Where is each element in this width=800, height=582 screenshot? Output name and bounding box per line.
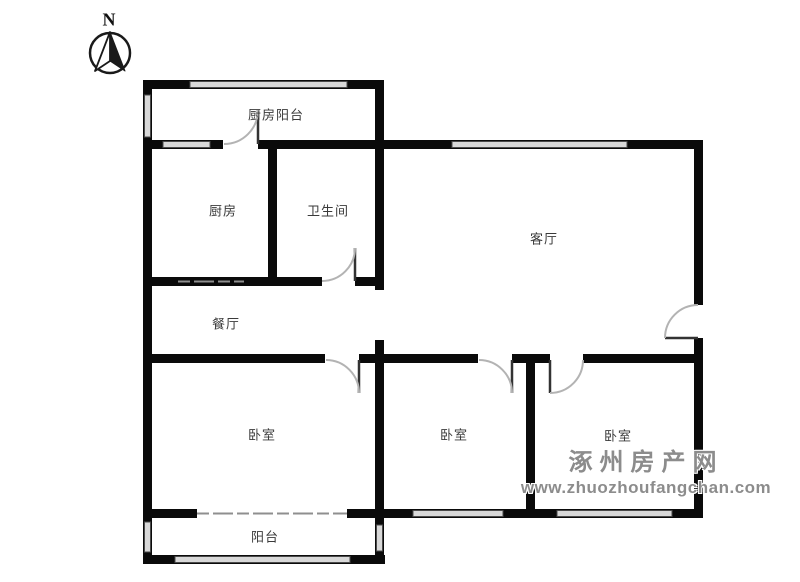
- wall-kitchen-bathroom-divider: [268, 140, 277, 286]
- wall-bedrooms-top-a: [143, 354, 325, 363]
- window-balcony-left: [145, 522, 151, 552]
- window-bedroom3-bottom: [557, 511, 672, 517]
- window-balcony-bottom: [175, 557, 350, 563]
- door-arc-entry: [665, 305, 698, 338]
- window-balcony-right: [377, 525, 383, 551]
- room-label-kitchen-balcony: 厨房阳台: [248, 105, 304, 124]
- door-arc-bathroom: [322, 248, 355, 281]
- room-label-dining-room: 餐厅: [212, 314, 240, 333]
- thin-partitions: [178, 282, 347, 514]
- room-label-balcony: 阳台: [251, 527, 279, 546]
- wall-bathroom-right: [375, 80, 384, 290]
- room-label-bedroom-2: 卧室: [440, 425, 468, 444]
- doors: [224, 110, 698, 393]
- room-label-bedroom-1: 卧室: [248, 425, 276, 444]
- window-kitchen-to-balcony: [163, 142, 210, 148]
- floorplan-canvas: N 厨房阳台 厨房 卫生间 客厅 餐厅 卧室 卧室 卧室 阳台 涿州房产网 ww…: [0, 0, 800, 582]
- door-arc-bedroom3: [550, 360, 583, 393]
- watermark-site-url: www.zhuozhoufangchan.com: [521, 478, 771, 498]
- door-openings: [223, 140, 704, 339]
- door-arc-bedroom2: [479, 360, 512, 393]
- window-living-room-top: [452, 142, 627, 148]
- compass: [90, 32, 130, 73]
- window-kitchen-balcony-left: [145, 95, 151, 137]
- room-label-living-room: 客厅: [530, 229, 558, 248]
- window-kitchen-balcony-top: [190, 82, 347, 88]
- watermark-site-name: 涿州房产网: [521, 442, 771, 477]
- door-arc-bedroom1: [326, 360, 359, 393]
- window-bedroom2-bottom: [413, 511, 503, 517]
- room-label-bathroom: 卫生间: [307, 201, 349, 220]
- wall-bedrooms-bottom-a: [143, 509, 197, 518]
- watermark: 涿州房产网 www.zhuozhoufangchan.com: [521, 442, 771, 498]
- room-label-kitchen: 厨房: [209, 201, 237, 220]
- wall-left-exterior: [143, 80, 152, 564]
- compass-north-label: N: [103, 10, 116, 31]
- wall-bedrooms-top-d: [583, 354, 698, 363]
- opening-entry-door: [694, 305, 704, 338]
